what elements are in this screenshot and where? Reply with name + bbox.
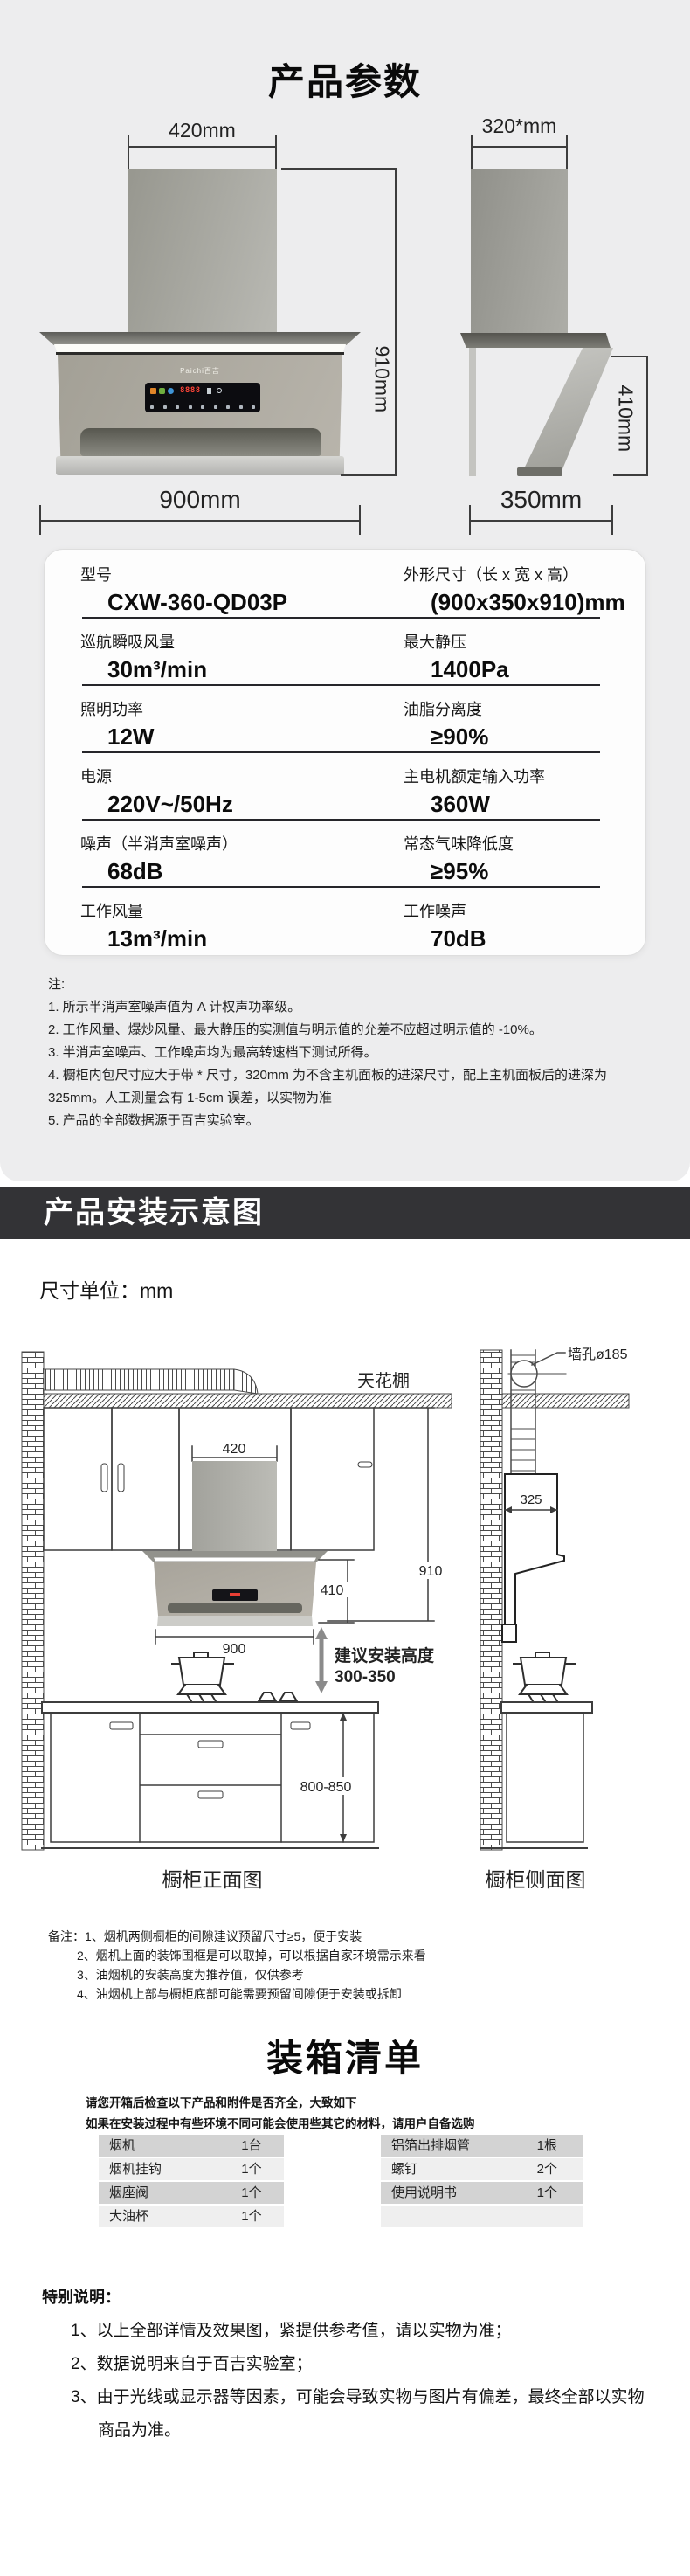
spec-label: 油脂分离度 [404,697,645,720]
spec-notes: 注: 1. 所示半消声室噪声值为 A 计权声功率级。 2. 工作风量、爆炒风量、… [48,973,644,1132]
dim-side-top-depth: 320*mm [471,114,568,138]
spec-value: (900x350x910)mm [404,589,645,616]
note-item: 2. 工作风量、爆炒风量、最大静压的实测值与明示值的允差不应超过明示值的 -10… [48,1019,633,1042]
spec-cell: 外形尺寸（长 x 宽 x 高） (900x350x910)mm [404,551,645,619]
remark-item: 1、烟机两侧橱柜的间隙建议预留尺寸≥5，便于安装 [85,1929,362,1943]
dim-chimney-width: 420 [223,1442,246,1457]
spec-cell: 工作噪声 70dB [404,888,645,955]
packing-row: 烟座阀 1个 [99,2182,284,2204]
notes-title: 注: [48,973,644,996]
side-view-caption: 橱柜侧面图 [486,1868,586,1891]
dim-front-width: 900mm [39,486,361,514]
packing-row: 烟机挂钩 1个 [99,2158,284,2180]
spec-cell: 型号 CXW-360-QD03P [45,551,404,619]
spec-label: 外形尺寸（长 x 宽 x 高） [404,563,645,585]
spec-row: 噪声（半消声室噪声） 68dB 常态气味降低度 ≥95% [45,821,645,888]
spec-value: 12W [80,724,404,751]
install-height-arrow [315,1627,328,1693]
packing-table-right: 铝箔出排烟管 1根 螺钉 2个 使用说明书 1个 [381,2135,583,2229]
panel-button [226,405,230,409]
dim-front-height: 910mm [370,346,394,398]
hood-canopy [39,332,361,345]
spec-label: 常态气味降低度 [404,832,645,855]
spec-label: 噪声（半消声室噪声） [80,832,404,855]
spec-cell: 主电机额定输入功率 360W [404,753,645,821]
item-qty: 2个 [537,2158,557,2180]
dim-hood-height: 410 [321,1583,344,1598]
cabinet-handle [110,1722,133,1729]
install-panel-display [230,1593,240,1596]
dim-line [613,474,648,476]
front-view-caption: 橱柜正面图 [162,1868,263,1891]
dim-counter-height: 800-850 [297,1713,355,1842]
dim-line [469,520,613,522]
item-name: 烟机挂钩 [99,2162,162,2177]
dim-tick [566,135,568,169]
install-hood-front [142,1461,328,1626]
panel-button [163,405,167,409]
leaf-icon [159,388,165,394]
remark-item: 2、烟机上面的装饰围框是可以取掉，可以根据自家环境需示来看 [77,1946,659,1965]
leader-line [532,1353,565,1365]
panel-button-row [150,405,255,409]
remark-line: 备注：1、烟机两侧橱柜的间隙建议预留尺寸≥5，便于安装 [48,1927,659,1946]
product-detail-page: 产品参数 420mm Paichi百吉 8888 910mm 900mm 320… [0,0,690,2576]
dim-line [646,357,648,476]
spec-cell: 巡航瞬吸风量 30m³/min [45,619,404,686]
panel-button [201,405,204,409]
panel-button [189,405,192,409]
dim-hood-width: 900 [223,1642,246,1657]
spec-value: 1400Pa [404,656,645,683]
item-name: 烟座阀 [99,2185,148,2200]
item-name: 烟机 [99,2138,135,2153]
spec-value: 68dB [80,858,404,885]
spec-cell: 常态气味降低度 ≥95% [404,821,645,888]
duct-elbow [234,1369,258,1394]
svg-text:325: 325 [520,1492,542,1507]
item-qty: 1个 [241,2158,261,2180]
install-diagram: 天花棚 420 [0,1341,690,1918]
install-opening [168,1603,302,1613]
cabinet-handle [358,1462,372,1467]
packing-intro-line: 如果在安装过程中有些环境不同可能会使用些其它的材料，请用户自备选购 [86,2114,627,2135]
countertop-front [42,1702,378,1713]
packing-row: 大油杯 1个 [99,2206,284,2227]
panel-icon-row: 8888 [150,386,255,395]
remarks-title: 备注： [48,1929,85,1943]
svg-text:800-850: 800-850 [300,1780,352,1795]
light-icon [207,388,211,394]
packing-table-left: 烟机 1台 烟机挂钩 1个 烟座阀 1个 大油杯 1个 [99,2135,284,2229]
spec-table: 型号 CXW-360-QD03P 外形尺寸（长 x 宽 x 高） (900x35… [44,549,646,956]
spec-cell: 油脂分离度 ≥90% [404,686,645,753]
spec-row: 工作风量 13m³/min 工作噪声 70dB [45,888,645,955]
spec-row: 电源 220V~/50Hz 主电机额定输入功率 360W [45,753,645,821]
drawer-handle [198,1791,223,1798]
dim-total-height: 910 [419,1564,443,1579]
spec-label: 型号 [80,563,404,585]
dim-line [471,146,568,148]
hood-suction-opening [80,428,321,456]
section-title-params: 产品参数 [0,52,690,106]
item-name: 铝箔出排烟管 [381,2138,470,2153]
dim-line [341,474,397,476]
hood-chimney-side [471,169,568,336]
hood-brand-logo: Paichi百吉 [58,366,342,376]
burner-grate [259,1693,297,1701]
special-notes: 特别说明： 1、以上全部详情及效果图，紧提供参考值，请以实物为准； 2、数据说明… [42,2285,653,2448]
spec-cell: 照明功率 12W [45,686,404,753]
hood-control-panel: 8888 [145,383,260,412]
spec-row: 照明功率 12W 油脂分离度 ≥90% [45,686,645,753]
hood-top-edge [56,352,344,355]
drawer-handle [198,1741,223,1748]
install-base [157,1616,313,1626]
packing-row: 使用说明书 1个 [381,2182,583,2204]
spec-row: 型号 CXW-360-QD03P 外形尺寸（长 x 宽 x 高） (900x35… [45,551,645,619]
item-name: 螺钉 [381,2162,417,2177]
dim-line [128,146,277,148]
spec-value: 30m³/min [80,656,404,683]
base-cabinet-side [507,1713,583,1842]
special-item: 3、由于光线或显示器等因素，可能会导致实物与图片有偏差，最终全部以实物商品为准。 [71,2381,647,2448]
oil-cup-side [502,1624,516,1642]
flame-icon [150,388,156,394]
special-item: 2、数据说明来自于百吉实验室； [71,2348,647,2381]
item-qty: 1个 [537,2182,557,2204]
item-qty: 1根 [537,2135,557,2157]
packing-row: 螺钉 2个 [381,2158,583,2180]
item-name: 大油杯 [99,2209,148,2224]
install-front-view: 天花棚 420 [22,1352,452,1891]
special-items: 1、以上全部详情及效果图，紧提供参考值，请以实物为准； 2、数据说明来自于百吉实… [71,2315,653,2448]
packing-intro: 请您开箱后检查以下产品和附件是否齐全，大致如下 如果在安装过程中有些环境不同可能… [86,2093,627,2135]
hood-chimney-front [128,169,277,336]
dim-tick [275,135,277,169]
item-qty: 1个 [241,2206,261,2227]
install-chimney [192,1461,277,1551]
panel-button [214,405,217,409]
fan-icon [168,388,174,394]
wall-hole-label: 墙孔ø185 [568,1347,628,1362]
exhaust-duct [44,1369,234,1390]
spec-cell: 最大静压 1400Pa [404,619,645,686]
item-name: 使用说明书 [381,2185,457,2200]
spec-label: 照明功率 [80,697,404,720]
spec-value: 70dB [404,925,645,952]
power-icon [217,388,222,393]
dim-side-height: 410mm [614,385,638,438]
special-title: 特别说明： [42,2285,653,2308]
spec-value: 360W [404,791,645,818]
section-banner-install: 产品安装示意图 [0,1187,690,1239]
remark-item: 4、油烟机上部与橱柜底部可能需要预留间隙便于安装或拆卸 [77,1984,659,2004]
spec-label: 工作噪声 [404,899,645,922]
cabinet-handle [118,1464,124,1492]
dim-front-top-width: 420mm [128,119,277,142]
item-qty: 1台 [241,2135,261,2157]
spec-label: 主电机额定输入功率 [404,765,645,787]
spec-row: 巡航瞬吸风量 30m³/min 最大静压 1400Pa [45,619,645,686]
dim-line [281,168,397,170]
unit-label: 尺寸单位：mm [39,1274,173,1304]
spec-cell: 噪声（半消声室噪声） 68dB [45,821,404,888]
panel-button [176,405,179,409]
dim-line [39,520,361,522]
dim-line [611,356,648,357]
spec-cell: 工作风量 13m³/min [45,888,404,955]
ceiling-front [44,1394,452,1408]
brick-wall-side [480,1350,502,1850]
panel-button [252,405,255,409]
cooking-pot-side [514,1652,575,1701]
ceiling-side [502,1394,629,1408]
packing-row: 烟机 1台 [99,2135,284,2157]
note-item: 5. 产品的全部数据源于百吉实验室。 [48,1110,633,1132]
spec-label: 电源 [80,765,404,787]
dim-line [395,169,397,475]
special-item: 1、以上全部详情及效果图，紧提供参考值，请以实物为准； [71,2315,647,2348]
hood-side-canopy [460,333,611,348]
hood-base-strip [56,456,344,475]
cooking-pot [172,1652,233,1701]
install-led [154,1558,316,1562]
hood-side-back-panel [469,348,476,476]
install-height-range: 300-350 [335,1668,396,1686]
dim-tick [471,135,473,169]
note-item: 1. 所示半消声室噪声值为 A 计权声功率级。 [48,996,633,1019]
packing-row [381,2206,583,2227]
install-remarks: 备注：1、烟机两侧橱柜的间隙建议预留尺寸≥5，便于安装 2、烟机上面的装饰围框是… [48,1927,659,2004]
spec-value: 220V~/50Hz [80,791,404,818]
spec-value: ≥90% [404,724,645,751]
timer-display: 8888 [180,386,201,395]
item-name [381,2209,391,2224]
panel-button [150,405,154,409]
packing-intro-line: 请您开箱后检查以下产品和附件是否齐全，大致如下 [86,2093,627,2114]
spec-cell: 电源 220V~/50Hz [45,753,404,821]
note-item: 4. 橱柜内包尺寸应大于带 * 尺寸，320mm 为不含主机面板的进深尺寸，配上… [48,1064,633,1110]
ceiling-label: 天花棚 [357,1371,410,1391]
hood-led-strip [54,344,346,352]
spec-label: 最大静压 [404,630,645,653]
spec-value: ≥95% [404,858,645,885]
hood-side-oil-cup [517,467,562,476]
panel-button [239,405,243,409]
packing-row: 铝箔出排烟管 1根 [381,2135,583,2157]
note-item: 3. 半消声室噪声、工作噪声均为最高转速档下测试所得。 [48,1042,633,1064]
cabinet-handle [291,1722,310,1729]
spec-value: CXW-360-QD03P [80,589,404,616]
cabinet-handle [101,1464,107,1492]
spec-label: 工作风量 [80,899,404,922]
dim-tick [128,135,129,169]
remark-item: 3、油烟机的安装高度为推荐值，仅供参考 [77,1965,659,1984]
spec-label: 巡航瞬吸风量 [80,630,404,653]
countertop-side [501,1702,592,1713]
install-height-label: 建议安装高度 [335,1645,435,1665]
spec-value: 13m³/min [80,925,404,952]
dim-side-depth: 350mm [469,486,613,514]
item-qty: 1个 [241,2182,261,2204]
section-title-packing: 装箱清单 [0,2029,690,2082]
install-side-view: 墙孔ø185 325 橱柜侧面图 [480,1347,629,1891]
brick-wall-front [22,1352,44,1850]
